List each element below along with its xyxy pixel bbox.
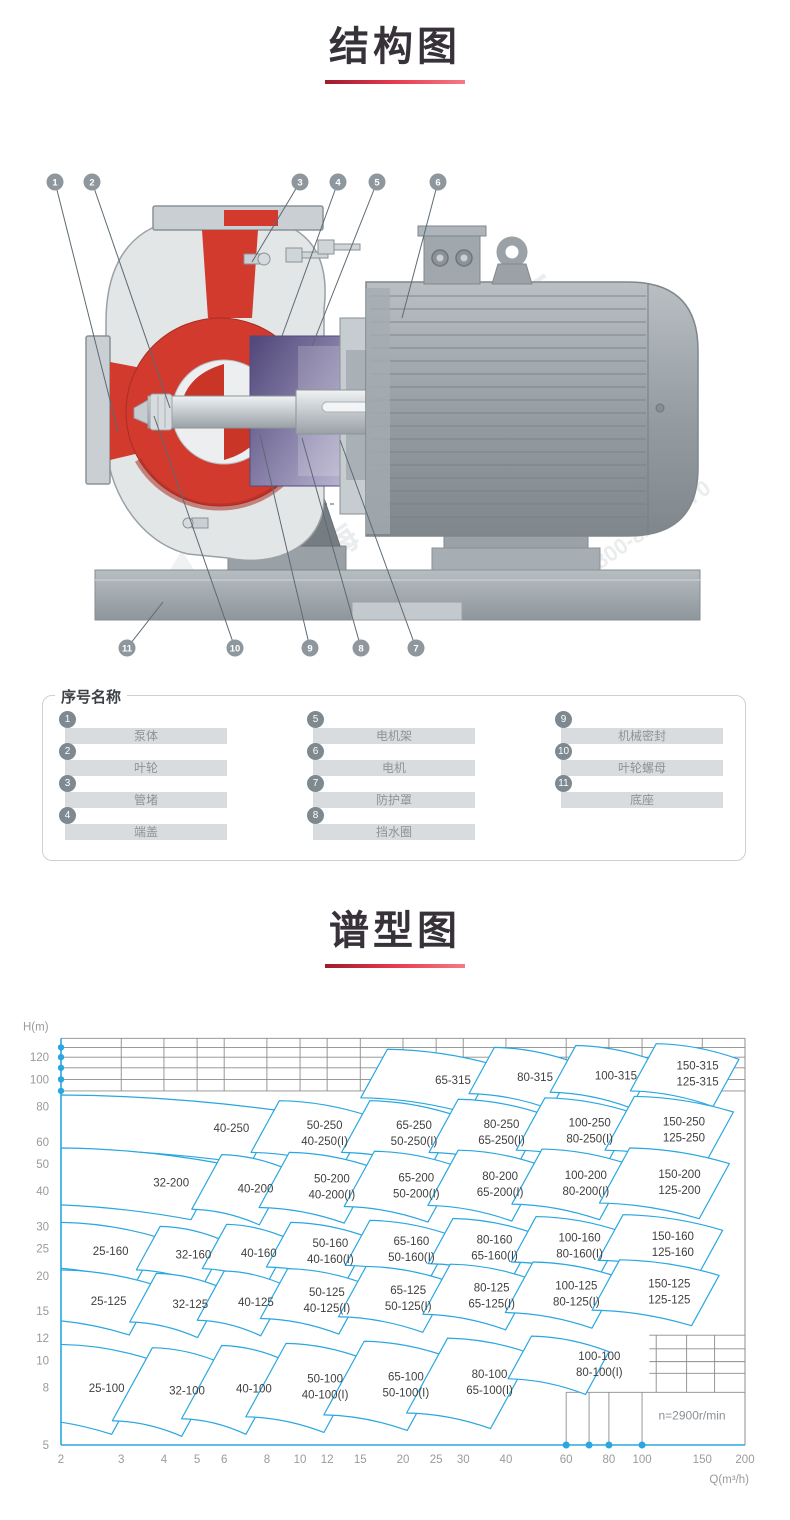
y-tick-label: 60 xyxy=(36,1137,49,1149)
region-label: 65-125(I) xyxy=(468,1299,515,1311)
region-label: 80-315 xyxy=(517,1072,553,1084)
x-axis-title: Q(m³/h) xyxy=(709,1474,749,1486)
region-label: 100-200 xyxy=(565,1170,607,1182)
legend-item: 3管堵 xyxy=(65,784,227,808)
legend-item-number: 9 xyxy=(555,711,572,728)
x-tick-label: 30 xyxy=(457,1454,470,1466)
region-label: 40-160(I) xyxy=(307,1254,354,1266)
y-tick-label: 25 xyxy=(36,1244,49,1256)
region-label: 150-125 xyxy=(648,1278,690,1290)
region-label: 65-315 xyxy=(435,1075,471,1087)
callout-number: 7 xyxy=(413,644,418,655)
callout-number: 11 xyxy=(122,644,133,655)
y-axis-dot xyxy=(58,1065,64,1071)
rpm-note: n=2900r/min xyxy=(659,1409,726,1423)
x-tick-label: 5 xyxy=(194,1454,200,1466)
x-tick-label: 150 xyxy=(693,1454,712,1466)
region-label: 50-200 xyxy=(314,1173,350,1185)
region-label: 32-200 xyxy=(153,1177,189,1189)
pump-cross-section-svg: 上海东海800-820-6570800-820-6570800-820-6570… xyxy=(0,150,790,680)
region-label: 32-100 xyxy=(169,1386,205,1398)
spectrum-chart-wrap: 65-31580-315100-315150-315125-31540-2505… xyxy=(0,1005,790,1510)
y-tick-label: 40 xyxy=(36,1186,49,1198)
x-tick-label: 4 xyxy=(161,1454,168,1466)
region-label: 80-100(I) xyxy=(576,1367,623,1379)
x-tick-label: 40 xyxy=(500,1454,513,1466)
y-axis-dot xyxy=(58,1044,64,1050)
legend-item-label: 机械密封 xyxy=(561,728,723,744)
x-tick-label: 200 xyxy=(735,1454,754,1466)
y-tick-label: 20 xyxy=(36,1271,49,1283)
region-label: 32-125 xyxy=(172,1299,208,1311)
region-label: 65-200 xyxy=(398,1172,434,1184)
region-label: 40-125 xyxy=(238,1297,274,1309)
y-axis-dot xyxy=(58,1088,64,1094)
region-label: 50-100(I) xyxy=(383,1387,430,1399)
region-label: 100-250 xyxy=(569,1117,611,1129)
region-label: 80-160 xyxy=(477,1234,513,1246)
legend-item: 11底座 xyxy=(561,784,723,808)
legend-item-label: 叶轮螺母 xyxy=(561,760,723,776)
region-label: 50-250 xyxy=(307,1120,343,1132)
region-label: 40-200(I) xyxy=(309,1189,356,1201)
region-label: 65-160 xyxy=(394,1236,430,1248)
region-label: 80-125 xyxy=(474,1283,510,1295)
legend-item-number: 10 xyxy=(555,743,572,760)
legend-item: 9机械密封 xyxy=(561,720,723,744)
y-tick-label: 10 xyxy=(36,1355,49,1367)
x-tick-label: 2 xyxy=(58,1454,64,1466)
region-100-100 xyxy=(508,1336,609,1394)
legend-item-number: 5 xyxy=(307,711,324,728)
legend-item: 6电机 xyxy=(313,752,475,776)
legend-item-label: 泵体 xyxy=(65,728,227,744)
x-tick-label: 8 xyxy=(264,1454,270,1466)
spectrum-chart: 65-31580-315100-315150-315125-31540-2505… xyxy=(0,1005,790,1510)
x-tick-label: 100 xyxy=(632,1454,651,1466)
x-axis-dot xyxy=(605,1442,612,1449)
region-label: 50-200(I) xyxy=(393,1188,440,1200)
legend-item-number: 6 xyxy=(307,743,324,760)
x-tick-label: 80 xyxy=(603,1454,616,1466)
x-axis-dot xyxy=(639,1442,646,1449)
base-notch xyxy=(352,602,462,620)
legend-item-label: 电机架 xyxy=(313,728,475,744)
region-label: 150-160 xyxy=(652,1231,694,1243)
x-tick-label: 25 xyxy=(430,1454,443,1466)
motor-screw xyxy=(656,404,664,412)
y-tick-label: 50 xyxy=(36,1159,49,1171)
callout-number: 9 xyxy=(307,644,312,655)
y-tick-label: 8 xyxy=(43,1383,49,1395)
x-axis-dot xyxy=(586,1442,593,1449)
legend-item-number: 11 xyxy=(555,775,572,792)
region-label: 65-250 xyxy=(396,1120,432,1132)
legend-item-number: 8 xyxy=(307,807,324,824)
callout-number: 1 xyxy=(52,178,58,189)
region-label: 100-100 xyxy=(578,1351,620,1363)
region-label: 50-125(I) xyxy=(385,1301,432,1313)
region-label: 40-160 xyxy=(241,1248,277,1260)
region-label: 100-125 xyxy=(555,1281,597,1293)
region-label: 65-160(I) xyxy=(471,1250,518,1262)
legend-item-label: 底座 xyxy=(561,792,723,808)
y-tick-label: 5 xyxy=(43,1440,49,1452)
y-tick-label: 80 xyxy=(36,1102,49,1114)
region-label: 65-100 xyxy=(388,1371,424,1383)
y-tick-label: 120 xyxy=(30,1052,49,1064)
x-axis-dot xyxy=(563,1442,570,1449)
region-label: 50-250(I) xyxy=(391,1136,438,1148)
pump-model-regions xyxy=(20,1044,739,1437)
region-label: 65-100(I) xyxy=(466,1385,513,1397)
region-label: 80-125(I) xyxy=(553,1297,600,1309)
legend-item-number: 3 xyxy=(59,775,76,792)
legend-item: 2叶轮 xyxy=(65,752,227,776)
callout-number: 2 xyxy=(89,178,94,189)
region-150-125 xyxy=(592,1260,719,1326)
region-label: 150-200 xyxy=(658,1169,700,1181)
region-label: 25-160 xyxy=(93,1246,129,1258)
legend-grid: 1泵体2叶轮3管堵4端盖5电机架6电机7防护罩8挡水圈9机械密封10叶轮螺母11… xyxy=(43,696,745,852)
motor-foot-lower xyxy=(432,548,600,570)
region-label: 125-160 xyxy=(652,1247,694,1259)
legend-item: 4端盖 xyxy=(65,816,227,840)
legend-item: 8挡水圈 xyxy=(313,816,475,840)
region-label: 32-160 xyxy=(176,1249,212,1261)
region-label: 50-160 xyxy=(312,1238,348,1250)
suction-flange xyxy=(86,336,110,484)
region-label: 150-315 xyxy=(676,1061,718,1073)
legend-item: 7防护罩 xyxy=(313,784,475,808)
x-tick-label: 12 xyxy=(321,1454,334,1466)
y-axis-dot xyxy=(58,1076,64,1082)
x-tick-label: 60 xyxy=(560,1454,573,1466)
region-label: 80-200 xyxy=(482,1171,518,1183)
region-label: 80-200(I) xyxy=(563,1186,610,1198)
discharge-throat xyxy=(202,230,258,318)
drain-plug xyxy=(192,518,208,528)
callout-number: 10 xyxy=(230,644,241,655)
region-label: 40-125(I) xyxy=(304,1303,351,1315)
legend-item: 10叶轮螺母 xyxy=(561,752,723,776)
region-label: 80-160(I) xyxy=(556,1249,603,1261)
region-label: 125-250 xyxy=(663,1133,705,1145)
region-label: 80-250 xyxy=(484,1119,520,1131)
y-axis-title: H(m) xyxy=(23,1021,49,1033)
y-tick-label: 12 xyxy=(36,1333,49,1345)
legend-item-label: 叶轮 xyxy=(65,760,227,776)
legend-item-label: 防护罩 xyxy=(313,792,475,808)
region-label: 50-125 xyxy=(309,1287,345,1299)
callout-number: 8 xyxy=(358,644,363,655)
y-tick-label: 30 xyxy=(36,1221,49,1233)
legend-item-number: 4 xyxy=(59,807,76,824)
legend-item-label: 电机 xyxy=(313,760,475,776)
region-label: 40-100(I) xyxy=(302,1389,349,1401)
y-tick-label: 100 xyxy=(30,1074,49,1086)
x-tick-label: 15 xyxy=(354,1454,367,1466)
motor-end-bell xyxy=(366,288,390,534)
region-label: 25-100 xyxy=(89,1383,125,1395)
legend-item-number: 2 xyxy=(59,743,76,760)
region-label: 40-250 xyxy=(214,1123,250,1135)
region-label: 125-315 xyxy=(676,1077,718,1089)
y-axis-dot xyxy=(58,1054,64,1060)
lifting-eye xyxy=(501,241,523,263)
region-label: 80-250(I) xyxy=(566,1133,613,1145)
spectrum-title: 谱型图 xyxy=(0,898,790,956)
x-tick-label: 6 xyxy=(221,1454,227,1466)
region-label: 65-125 xyxy=(390,1285,426,1297)
region-150-200 xyxy=(600,1148,730,1219)
legend-item-label: 端盖 xyxy=(65,824,227,840)
parts-legend: 序号名称 1泵体2叶轮3管堵4端盖5电机架6电机7防护罩8挡水圈9机械密封10叶… xyxy=(42,695,746,861)
legend-item-number: 7 xyxy=(307,775,324,792)
region-label: 50-100 xyxy=(307,1373,343,1385)
impeller-nut-part xyxy=(150,394,172,430)
region-label: 80-100 xyxy=(472,1369,508,1381)
y-tick-label: 15 xyxy=(36,1306,49,1318)
region-label: 40-200 xyxy=(238,1183,274,1195)
region-label: 65-250(I) xyxy=(478,1135,525,1147)
legend-item-number: 1 xyxy=(59,711,76,728)
x-tick-label: 20 xyxy=(397,1454,410,1466)
callout-number: 3 xyxy=(297,178,302,189)
region-label: 125-200 xyxy=(658,1185,700,1197)
structure-title-underline xyxy=(325,80,465,84)
legend-item: 1泵体 xyxy=(65,720,227,744)
region-label: 125-125 xyxy=(648,1294,690,1306)
structure-diagram: 上海东海800-820-6570800-820-6570800-820-6570… xyxy=(0,150,790,680)
callout-number: 6 xyxy=(435,178,440,189)
region-label: 40-250(I) xyxy=(301,1136,348,1148)
legend-item: 5电机架 xyxy=(313,720,475,744)
callout-number: 5 xyxy=(374,178,380,189)
region-label: 50-160(I) xyxy=(388,1252,435,1264)
legend-title: 序号名称 xyxy=(55,686,127,707)
x-tick-label: 3 xyxy=(118,1454,124,1466)
callout-number: 4 xyxy=(335,178,341,189)
legend-item-label: 管堵 xyxy=(65,792,227,808)
x-tick-label: 10 xyxy=(294,1454,307,1466)
legend-item-label: 挡水圈 xyxy=(313,824,475,840)
region-label: 25-125 xyxy=(91,1296,127,1308)
page: { "structure_section": { "title": "结构图" … xyxy=(0,0,790,1520)
structure-title: 结构图 xyxy=(0,14,790,72)
region-label: 40-100 xyxy=(236,1384,272,1396)
region-label: 100-160 xyxy=(558,1233,600,1245)
region-label: 65-200(I) xyxy=(477,1187,524,1199)
spectrum-title-underline xyxy=(325,964,465,968)
region-label: 100-315 xyxy=(595,1070,637,1082)
region-label: 150-250 xyxy=(663,1117,705,1129)
